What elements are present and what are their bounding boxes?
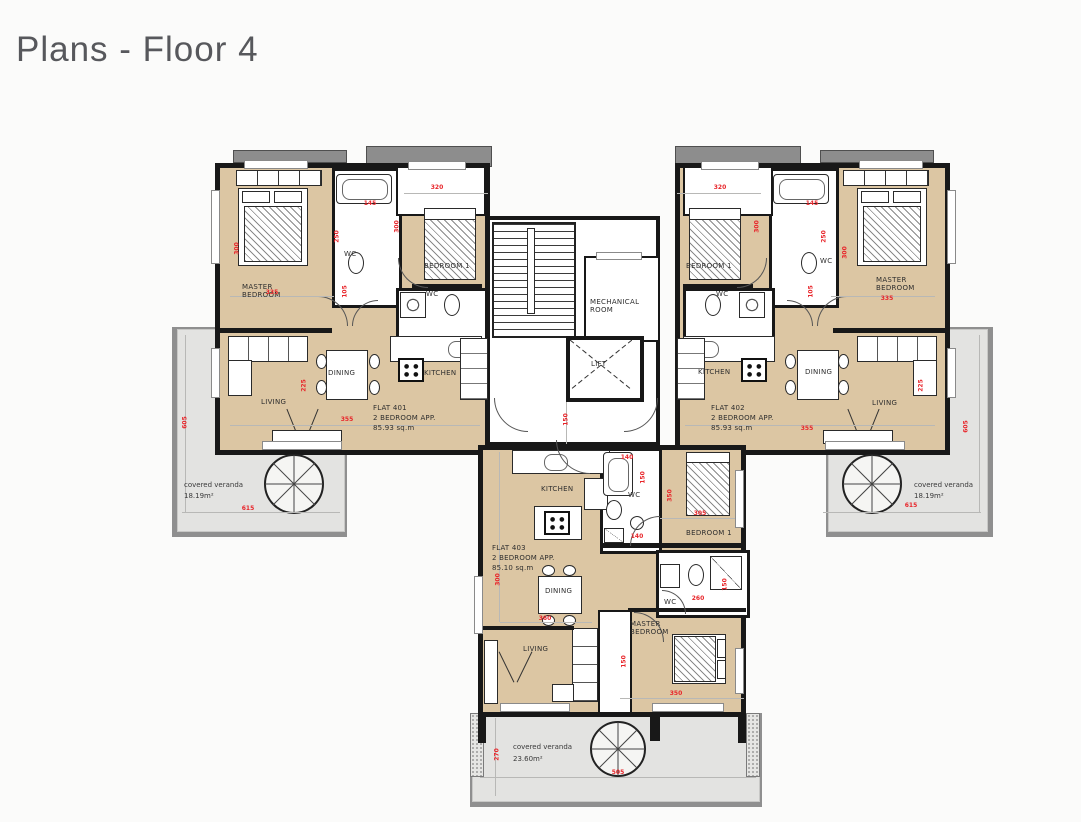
dimension-label: 360 [533, 615, 557, 622]
balcony-door [500, 703, 570, 712]
room-label-bedroom1-401: BEDROOM 1 [424, 262, 470, 270]
dimension-label: 335 [260, 289, 284, 296]
pillow [686, 452, 730, 463]
room-label-wc2-401: WC [426, 290, 438, 298]
bed-hatch [244, 206, 302, 262]
flat-401-label: FLAT 401 2 BEDROOM APP. 85.93 sq.m [373, 403, 436, 433]
toilet [444, 294, 460, 316]
veranda-right-label: covered veranda [914, 481, 973, 489]
sofa [228, 336, 308, 362]
chair [785, 380, 796, 395]
dimension-label: 105 [342, 280, 349, 304]
chair [563, 565, 576, 576]
stove [398, 358, 424, 382]
room-label-living-401: LIVING [261, 398, 286, 406]
flat-402-area: 85.93 sq.m [711, 423, 774, 433]
sofa-arm [552, 684, 574, 702]
partition-wall [482, 626, 574, 630]
balcony-door [262, 441, 342, 450]
dimension-label: 300 [842, 241, 849, 265]
flat-401-area: 85.93 sq.m [373, 423, 436, 433]
dimension-label: 225 [301, 374, 308, 398]
flat-402-name: FLAT 402 [711, 403, 774, 413]
flat-402-label: FLAT 402 2 BEDROOM APP. 85.93 sq.m [711, 403, 774, 433]
shower [739, 292, 765, 318]
bathtub-inner [342, 179, 388, 200]
chair [369, 354, 380, 369]
dimension-label: 300 [754, 215, 761, 239]
room-label-bedroom1-402: BEDROOM 1 [686, 262, 732, 270]
dimension-label: 150 [563, 408, 570, 432]
chair [563, 615, 576, 626]
dimension-label: 505 [606, 769, 630, 776]
dimension-label: 350 [664, 690, 688, 697]
dimension-label: 320 [708, 184, 732, 191]
veranda-bottom-label: covered veranda [513, 743, 572, 751]
chair [316, 380, 327, 395]
toilet [688, 564, 704, 586]
stair-rail [527, 228, 535, 314]
room-label-kitchen-403: KITCHEN [541, 485, 573, 493]
sofa-arm [228, 360, 252, 396]
chair [785, 354, 796, 369]
dining-table [538, 576, 582, 614]
washbasin [660, 564, 680, 588]
room-label-wc-403: WC [628, 491, 640, 499]
toilet [801, 252, 817, 274]
room-label-dining-403: DINING [545, 587, 572, 595]
wardrobe [843, 170, 929, 186]
window [701, 161, 759, 170]
dimension-label: 150 [621, 650, 628, 674]
dimension-label: 615 [236, 505, 260, 512]
veranda-left-area: 18.19m² [184, 492, 214, 500]
chair [838, 354, 849, 369]
dimension-label: 250 [334, 225, 341, 249]
wall-stub [650, 713, 660, 741]
room-label-living-403: LIVING [523, 645, 548, 653]
flat-401-type: 2 BEDROOM APP. [373, 413, 436, 423]
bed-hatch [674, 636, 716, 682]
dimension-label: 250 [821, 225, 828, 249]
dimension-label: 350 [667, 484, 674, 508]
room-label-master-402: MASTER BEDROOM [876, 276, 932, 292]
dimension-label: 270 [494, 743, 501, 767]
room-label-bedroom1-403: BEDROOM 1 [686, 529, 732, 537]
dimension-label: 150 [640, 466, 647, 490]
window [735, 470, 744, 528]
bed-hatch [863, 206, 921, 262]
dimension-label: 150 [722, 573, 729, 597]
bathtub-inner [779, 179, 825, 200]
veranda-wall-texture [746, 713, 760, 777]
pillow [274, 191, 302, 203]
room-label-dining-401: DINING [328, 369, 355, 377]
dimension-label: 145 [358, 200, 382, 207]
dimension-label: 605 [182, 411, 189, 435]
window [211, 348, 220, 398]
partition-wall [628, 608, 746, 612]
partition-wall [220, 328, 332, 333]
room-label-lift: LIFT [591, 360, 606, 368]
dimension-label: 145 [800, 200, 824, 207]
dimension-label: 335 [875, 295, 899, 302]
chair [369, 380, 380, 395]
pillow [717, 660, 726, 679]
washing-machine [604, 528, 624, 543]
dimension-label: 320 [425, 184, 449, 191]
room-label-dining-402: DINING [805, 368, 832, 376]
sofa [572, 628, 598, 702]
pillow [861, 191, 889, 203]
dimension-label: 140 [625, 533, 649, 540]
dimension-label: 300 [394, 215, 401, 239]
window [474, 576, 483, 634]
wardrobe [236, 170, 322, 186]
veranda-bottom-area: 23.60m² [513, 755, 543, 763]
window [735, 648, 744, 694]
dimension-label: 615 [899, 502, 923, 509]
partition-wall [600, 543, 746, 548]
veranda-left-label: covered veranda [184, 481, 243, 489]
dimension-label: 260 [686, 595, 710, 602]
stove [741, 358, 767, 382]
room-label-wc-401: WC [344, 250, 356, 258]
pillow [893, 191, 921, 203]
flat-403-name: FLAT 403 [492, 543, 555, 553]
window [947, 348, 956, 398]
toilet [606, 500, 622, 520]
window [211, 190, 220, 264]
tv-unit [484, 640, 498, 704]
wall-stub [478, 713, 486, 743]
window [596, 252, 642, 260]
window [947, 190, 956, 264]
veranda-round-table [841, 453, 903, 515]
flat-401-name: FLAT 401 [373, 403, 436, 413]
window [859, 160, 923, 169]
dimension-label: 605 [963, 415, 970, 439]
pillow [689, 208, 741, 220]
dimension-label: 355 [795, 425, 819, 432]
kitchen-column [460, 338, 488, 400]
room-label-wc-402: WC [820, 257, 832, 265]
dimension-label: 305 [688, 510, 712, 517]
dimension-label: 355 [335, 416, 359, 423]
partition-wall [833, 328, 945, 333]
room-label-mechanical: MECHANICAL ROOM [590, 298, 654, 314]
window [408, 161, 466, 170]
pillow [424, 208, 476, 220]
window [244, 160, 308, 169]
window [652, 703, 724, 712]
veranda-round-table [263, 453, 325, 515]
dimension-label: 140 [615, 454, 639, 461]
dimension-label: 225 [918, 374, 925, 398]
chair [316, 354, 327, 369]
flat-403-type: 2 BEDROOM APP. [492, 553, 555, 563]
veranda-right-area: 18.19m² [914, 492, 944, 500]
pillow [242, 191, 270, 203]
bathtub-inner [608, 458, 629, 492]
pillow [717, 639, 726, 658]
wall-stub [738, 713, 746, 743]
room-label-kitchen-401: KITCHEN [424, 369, 456, 377]
room-label-kitchen-402: KITCHEN [698, 368, 730, 376]
room-label-master-403: MASTER BEDROOM [630, 620, 686, 636]
stove [544, 511, 570, 535]
room-label-wc2-402: WC [716, 290, 728, 298]
balcony-door [825, 441, 905, 450]
room-label-living-402: LIVING [872, 399, 897, 407]
chair [838, 380, 849, 395]
flat-402-type: 2 BEDROOM APP. [711, 413, 774, 423]
page-title: Plans - Floor 4 [16, 30, 259, 70]
dimension-label: 300 [234, 237, 241, 261]
sofa [857, 336, 937, 362]
shower [400, 292, 426, 318]
dimension-label: 105 [808, 280, 815, 304]
room-label-wc2-403: WC [664, 598, 676, 606]
dimension-label: 300 [495, 568, 502, 592]
